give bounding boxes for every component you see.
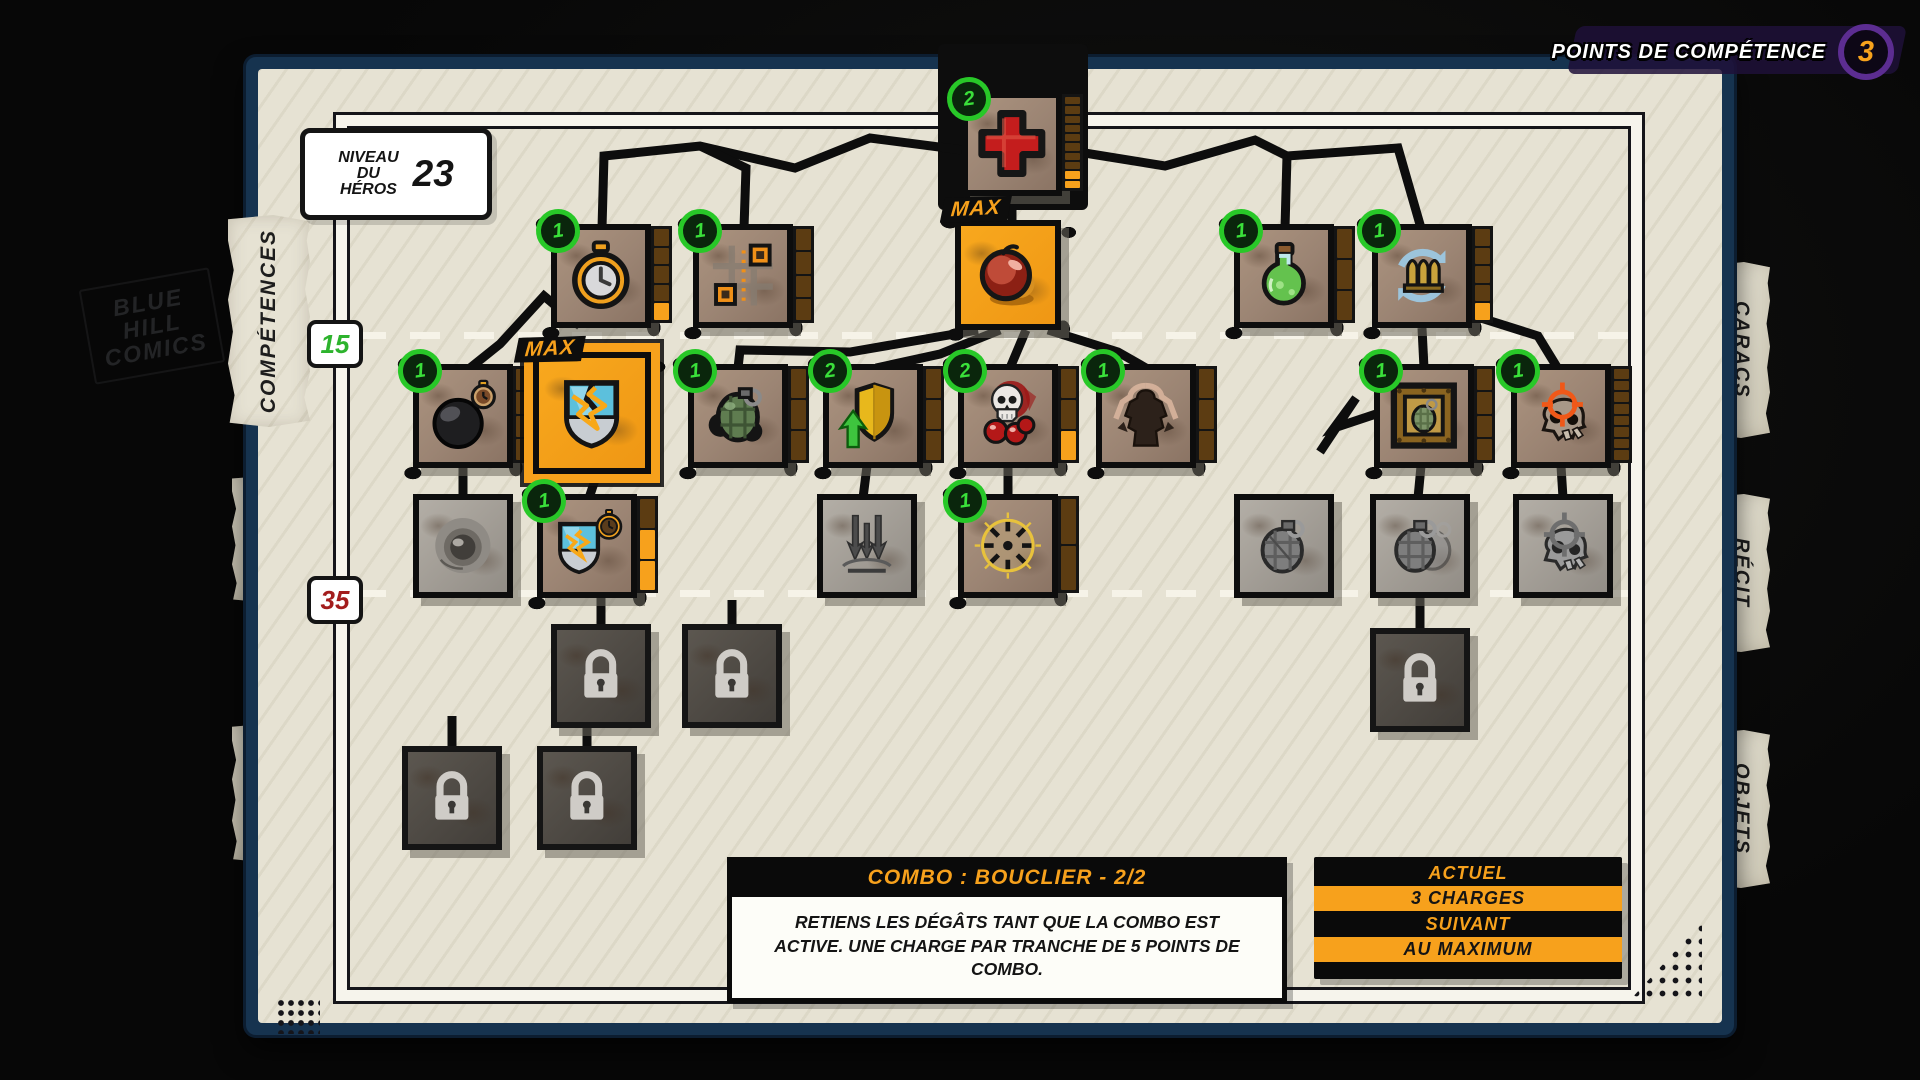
progress-segment xyxy=(1614,450,1629,460)
progress-segment xyxy=(1061,499,1076,544)
status-row-label: SUIVANT xyxy=(1314,912,1622,937)
progress-segment xyxy=(1477,392,1492,413)
progress-segment xyxy=(1065,116,1080,123)
progress-segment xyxy=(516,369,531,390)
progress-segment xyxy=(1614,369,1629,379)
progress-segment xyxy=(926,431,941,460)
skill-status-panel: ACTUEL3 CHARGESSUIVANTAU MAXIMUM xyxy=(1314,857,1622,979)
progress-segment xyxy=(926,400,941,429)
skill-progress-strip xyxy=(651,226,672,323)
skill-tooltip: COMBO : BOUCLIER - 2/2 RETIENS LES DÉGÂT… xyxy=(727,857,1287,1003)
progress-segment xyxy=(1614,416,1629,426)
progress-segment xyxy=(654,285,669,302)
progress-segment xyxy=(654,303,669,320)
skill-progress-strip xyxy=(1611,366,1632,463)
progress-segment xyxy=(1065,125,1080,132)
orb-gray-icon xyxy=(419,500,507,592)
skill-progress-strip xyxy=(1062,94,1083,191)
level-marker-15: 15 xyxy=(307,320,363,368)
max-label: MAX xyxy=(940,194,1012,225)
skill-node-skull-crosshair[interactable]: 1 xyxy=(1511,364,1611,468)
progress-segment xyxy=(516,416,531,437)
skill-node-black-bomb[interactable]: 1 xyxy=(413,364,513,468)
skullcross-gray-icon xyxy=(1519,500,1607,592)
skill-node-stopwatch[interactable]: 1 xyxy=(551,224,651,328)
progress-segment xyxy=(1065,106,1080,113)
skill-tile xyxy=(682,624,782,728)
skill-node-crate-grenade[interactable]: 1 xyxy=(1374,364,1474,468)
tooltip-description: RETIENS LES DÉGÂTS TANT QUE LA COMBO EST… xyxy=(732,897,1282,998)
progress-segment xyxy=(791,400,806,429)
progress-segment xyxy=(640,561,655,590)
progress-segment xyxy=(1065,181,1080,188)
grenade-gray-icon xyxy=(1240,500,1328,592)
skill-node-skull-bombs[interactable]: 2 xyxy=(958,364,1058,468)
skill-node-lock-2[interactable] xyxy=(682,624,782,728)
progress-segment xyxy=(1475,248,1490,265)
progress-segment xyxy=(640,530,655,559)
skill-node-air-strike[interactable] xyxy=(817,494,917,598)
progress-segment xyxy=(1199,431,1214,460)
skill-node-gray-orb[interactable] xyxy=(413,494,513,598)
progress-segment xyxy=(1475,303,1490,320)
progress-segment xyxy=(1061,400,1076,429)
progress-segment xyxy=(1477,369,1492,390)
skill-node-gray-grenade[interactable] xyxy=(1234,494,1334,598)
skill-node-reload[interactable]: 1 xyxy=(1372,224,1472,328)
skill-progress-strip xyxy=(1058,496,1079,593)
bomb-red-icon xyxy=(961,226,1055,324)
skill-node-blade-wheel[interactable]: 1 xyxy=(958,494,1058,598)
progress-segment xyxy=(1477,416,1492,437)
progress-segment xyxy=(796,276,811,297)
skill-points-indicator: POINTS DE COMPÉTENCE 3 xyxy=(1552,24,1894,80)
skill-node-waypoint[interactable]: 1 xyxy=(693,224,793,328)
lock-icon xyxy=(543,752,631,844)
progress-segment xyxy=(1614,404,1629,414)
grenade2-gray-icon xyxy=(1376,500,1464,592)
progress-segment xyxy=(1337,291,1352,320)
progress-segment xyxy=(516,439,531,460)
progress-segment xyxy=(1065,153,1080,160)
skill-node-shield-upgrade[interactable]: 2 xyxy=(823,364,923,468)
progress-segment xyxy=(516,392,531,413)
hero-level-box: NIVEAU DU HÉROS 23 xyxy=(300,128,492,220)
tooltip-title: COMBO : BOUCLIER - 2/2 xyxy=(732,862,1282,897)
level-marker-35: 35 xyxy=(307,576,363,624)
skill-node-lock-1[interactable] xyxy=(551,624,651,728)
tab-label: COMPÉTENCES xyxy=(257,229,281,413)
progress-segment xyxy=(640,499,655,528)
progress-segment xyxy=(654,266,669,283)
skill-progress-strip xyxy=(1058,366,1079,463)
strike-gray-icon xyxy=(823,500,911,592)
progress-segment xyxy=(1199,369,1214,398)
hero-level-label: NIVEAU DU HÉROS xyxy=(338,150,398,199)
progress-segment xyxy=(1475,229,1490,246)
progress-segment xyxy=(796,252,811,273)
skill-node-lock-5[interactable] xyxy=(537,746,637,850)
progress-segment xyxy=(1614,392,1629,402)
progress-segment xyxy=(1061,369,1076,398)
skill-progress-strip xyxy=(1196,366,1217,463)
lock-icon xyxy=(688,630,776,722)
skill-node-lock-4[interactable] xyxy=(402,746,502,850)
progress-segment xyxy=(1337,229,1352,258)
status-row-value: AU MAXIMUM xyxy=(1314,937,1622,962)
progress-segment xyxy=(791,431,806,460)
progress-segment xyxy=(1614,427,1629,437)
hero-level-value: 23 xyxy=(413,153,454,195)
skill-tile xyxy=(533,352,651,474)
skill-tile xyxy=(1370,628,1470,732)
max-label: MAX xyxy=(514,334,586,365)
skill-progress-strip xyxy=(788,366,809,463)
skill-progress-strip xyxy=(923,366,944,463)
skill-node-gray-double-grenade[interactable] xyxy=(1370,494,1470,598)
skill-tile xyxy=(1234,494,1334,598)
skill-node-lock-3[interactable] xyxy=(1370,628,1470,732)
progress-segment xyxy=(1061,546,1076,591)
progress-segment xyxy=(791,369,806,398)
skill-points-badge: 3 xyxy=(1838,24,1894,80)
skill-tile xyxy=(551,624,651,728)
skill-tree-screen: BLUE HILL COMICS POINTS DE COMPÉTENCE 3 … xyxy=(0,0,1920,1080)
progress-segment xyxy=(1199,400,1214,429)
skill-progress-strip xyxy=(1334,226,1355,323)
progress-segment xyxy=(926,369,941,398)
progress-segment xyxy=(1477,439,1492,460)
progress-segment xyxy=(1065,97,1080,104)
skill-progress-strip xyxy=(1472,226,1493,323)
skill-node-bomb-max[interactable]: MAX xyxy=(955,220,1061,330)
skill-tile xyxy=(955,220,1061,330)
skill-node-berserker[interactable]: 1 xyxy=(1096,364,1196,468)
skill-tile xyxy=(817,494,917,598)
skill-node-grenade[interactable]: 1 xyxy=(688,364,788,468)
skill-points-value: 3 xyxy=(1858,36,1874,69)
skill-tile xyxy=(413,494,513,598)
skill-progress-strip xyxy=(637,496,658,593)
progress-segment xyxy=(654,229,669,246)
tab-competences[interactable]: COMPÉTENCES xyxy=(228,215,310,427)
lock-icon xyxy=(557,630,645,722)
progress-segment xyxy=(1475,266,1490,283)
progress-segment xyxy=(654,248,669,265)
skill-tile xyxy=(537,746,637,850)
progress-segment xyxy=(796,229,811,250)
skill-progress-strip xyxy=(793,226,814,323)
skill-tile xyxy=(402,746,502,850)
skill-node-gray-skull-crosshair[interactable] xyxy=(1513,494,1613,598)
skill-tile xyxy=(1513,494,1613,598)
progress-segment xyxy=(796,299,811,320)
status-row-value: 3 CHARGES xyxy=(1314,886,1622,911)
progress-segment xyxy=(1061,431,1076,460)
status-row-label: ACTUEL xyxy=(1314,861,1622,886)
halftone-dots xyxy=(276,998,320,1034)
progress-segment xyxy=(1065,162,1080,169)
progress-segment xyxy=(1614,381,1629,391)
skill-node-shield-combo[interactable]: MAX xyxy=(533,352,651,474)
skill-node-potion[interactable]: 1 xyxy=(1234,224,1334,328)
skill-points-label: POINTS DE COMPÉTENCE xyxy=(1552,41,1826,64)
skill-node-heal[interactable]: 2 xyxy=(962,92,1062,196)
progress-segment xyxy=(1065,143,1080,150)
progress-segment xyxy=(1065,134,1080,141)
lock-icon xyxy=(1376,634,1464,726)
shield-combo-icon xyxy=(539,358,645,468)
skill-progress-strip xyxy=(1474,366,1495,463)
skill-tile xyxy=(1370,494,1470,598)
background-logo: BLUE HILL COMICS xyxy=(79,267,226,385)
lock-icon xyxy=(408,752,496,844)
skill-progress-strip xyxy=(513,366,534,463)
progress-segment xyxy=(1614,439,1629,449)
progress-segment xyxy=(1065,171,1080,178)
progress-segment xyxy=(1475,285,1490,302)
skill-node-shield-timer[interactable]: 1 xyxy=(537,494,637,598)
progress-segment xyxy=(1337,260,1352,289)
